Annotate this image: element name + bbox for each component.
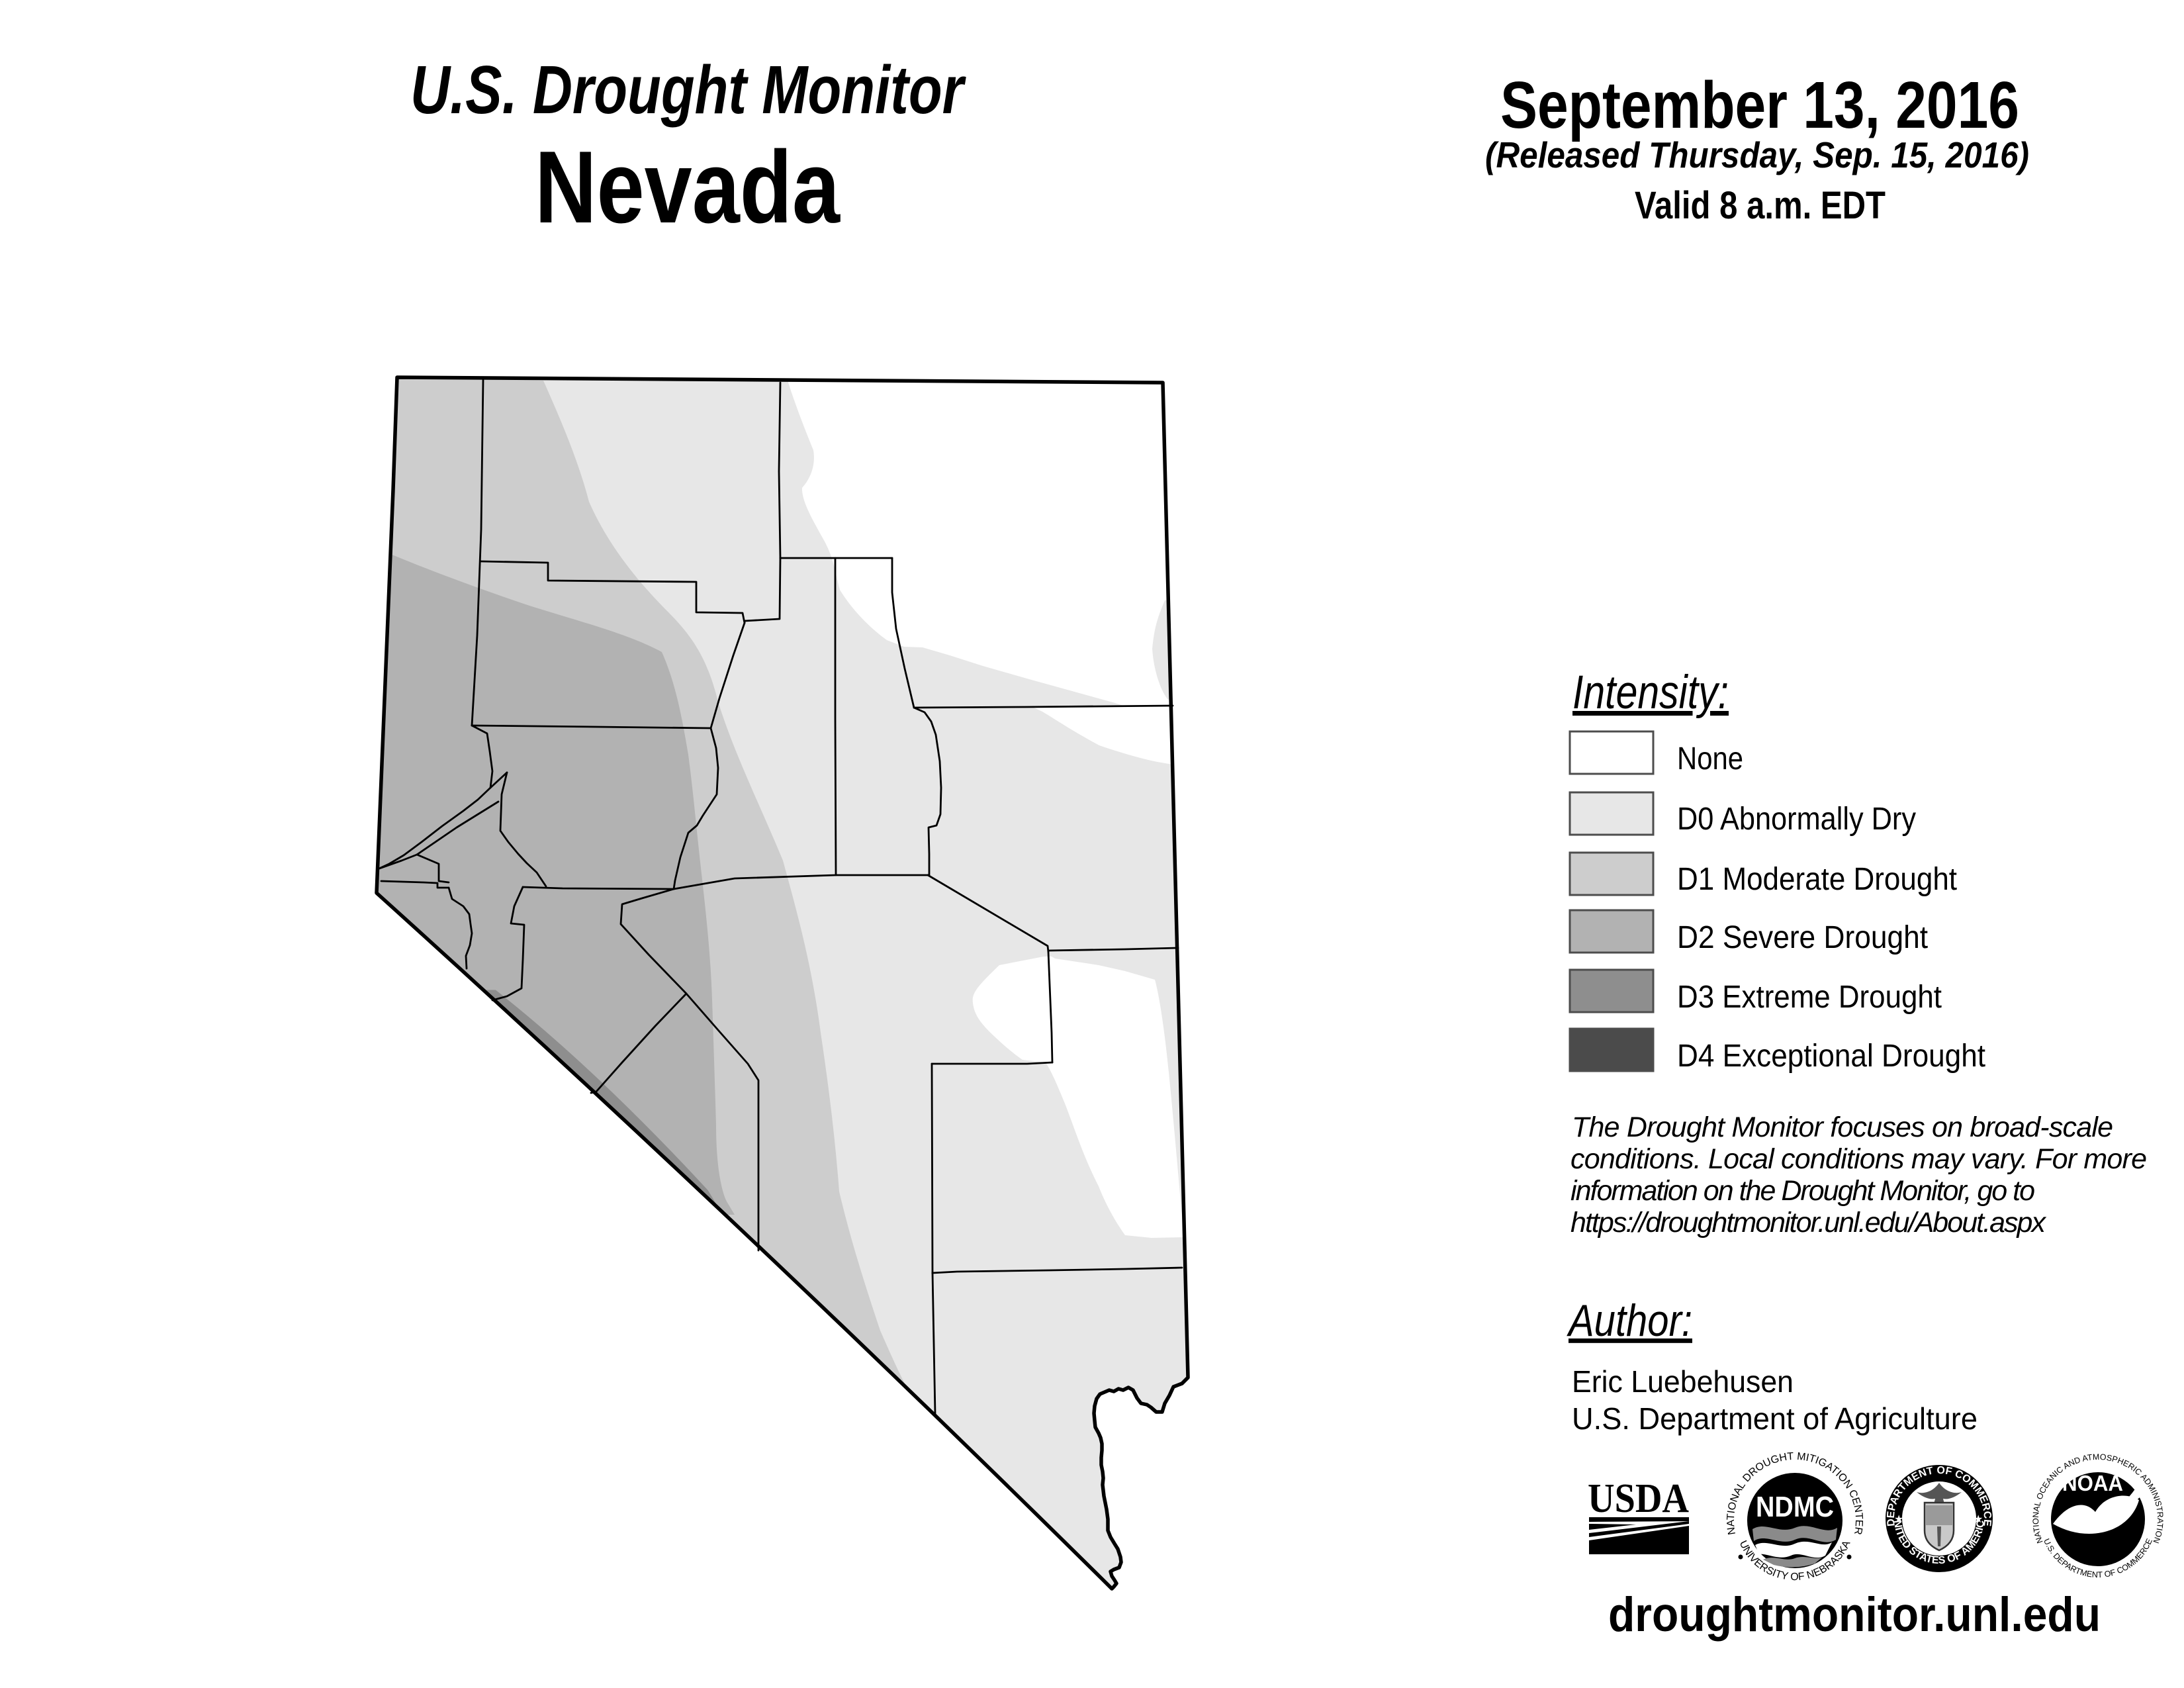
svg-text:The Drought Monitor focuses on: The Drought Monitor focuses on broad-sca… [1572,1111,2113,1143]
svg-text:Author:: Author: [1567,1295,1692,1346]
svg-text:USDA: USDA [1588,1476,1689,1521]
svg-text:D1 Moderate Drought: D1 Moderate Drought [1677,862,1957,897]
svg-text:https://droughtmonitor.unl.edu: https://droughtmonitor.unl.edu/About.asp… [1570,1207,2047,1239]
svg-text:None: None [1677,741,1743,776]
svg-text:NOAA: NOAA [2062,1471,2123,1495]
svg-text:U.S. Drought Monitor: U.S. Drought Monitor [410,52,966,128]
svg-text:NDMC: NDMC [1756,1491,1834,1523]
svg-text:information on the Drought Mon: information on the Drought Monitor, go t… [1570,1175,2035,1207]
svg-text:U.S. Department of Agriculture: U.S. Department of Agriculture [1572,1401,1978,1436]
svg-text:★: ★ [1894,1514,1903,1525]
svg-text:Eric Luebehusen: Eric Luebehusen [1572,1364,1794,1399]
svg-text:D4 Exceptional Drought: D4 Exceptional Drought [1677,1039,1985,1074]
svg-text:conditions. Local conditions m: conditions. Local conditions may vary. F… [1570,1143,2147,1175]
svg-text:September 13, 2016: September 13, 2016 [1500,68,2019,142]
svg-text:(Released Thursday, Sep. 15, 2: (Released Thursday, Sep. 15, 2016) [1485,134,2029,175]
svg-text:D3 Extreme Drought: D3 Extreme Drought [1677,980,1942,1015]
svg-text:Intensity:: Intensity: [1572,667,1729,719]
svg-text:Valid 8 a.m. EDT: Valid 8 a.m. EDT [1635,184,1886,227]
svg-text:★: ★ [1974,1514,1983,1525]
svg-text:droughtmonitor.unl.edu: droughtmonitor.unl.edu [1608,1588,2101,1642]
svg-text:D2 Severe Drought: D2 Severe Drought [1677,920,1928,955]
svg-text:D0 Abnormally Dry: D0 Abnormally Dry [1677,802,1916,837]
svg-text:Nevada: Nevada [535,130,841,244]
